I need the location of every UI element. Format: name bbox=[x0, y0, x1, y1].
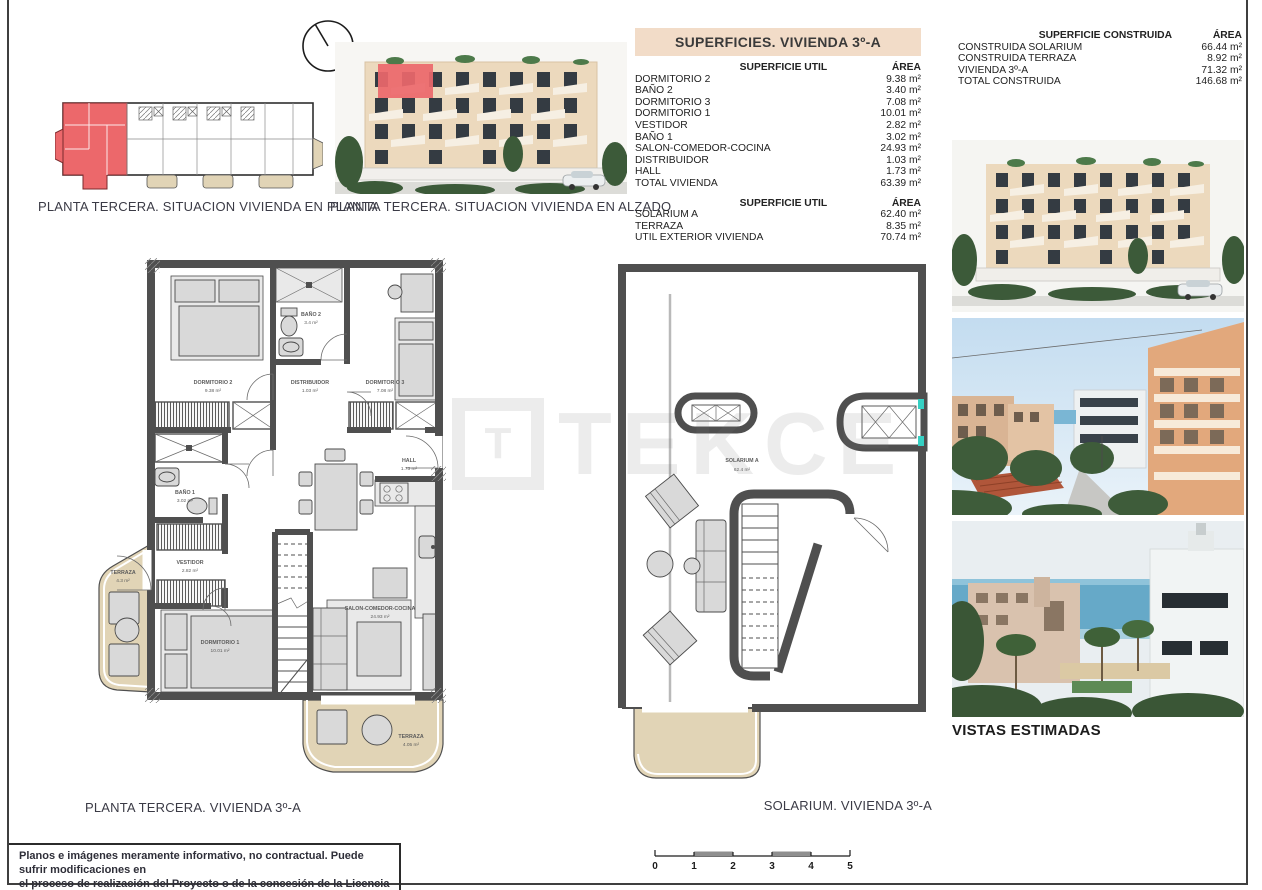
elevation-render bbox=[335, 42, 627, 194]
main-floor-plan: TERRAZA 4.3 m² TERRAZA 4.05 m² bbox=[85, 252, 470, 792]
site-terrace bbox=[259, 175, 293, 188]
room-label: VESTIDOR bbox=[176, 560, 203, 566]
table-row: DORMITORIO 29.38 m² bbox=[635, 74, 921, 86]
svg-text:1.03 m²: 1.03 m² bbox=[302, 388, 319, 394]
table-row: SALON-COMEDOR-COCINA24.93 m² bbox=[635, 143, 921, 155]
photo-street-view bbox=[952, 318, 1244, 515]
scale-label: 2 bbox=[730, 861, 736, 872]
table-row: BAÑO 13.02 m² bbox=[635, 132, 921, 144]
room-label: DISTRIBUIDOR bbox=[291, 380, 329, 386]
disclaimer-box: Planos e imágenes meramente informativo,… bbox=[9, 843, 401, 890]
table-row: SOLARIUM A62.40 m² bbox=[635, 209, 921, 221]
svg-text:3.4 m²: 3.4 m² bbox=[304, 320, 318, 326]
table-row: TOTAL CONSTRUIDA146.68 m² bbox=[958, 76, 1242, 88]
disclaimer-line2: el proceso de realización del Proyecto o… bbox=[19, 878, 389, 890]
svg-text:4.3 m²: 4.3 m² bbox=[116, 578, 130, 584]
site-terrace bbox=[147, 175, 177, 188]
scale-label: 0 bbox=[652, 861, 658, 872]
frame-right bbox=[1246, 0, 1248, 885]
scale-label: 5 bbox=[847, 861, 853, 872]
room-label: HALL bbox=[402, 458, 417, 464]
plan-sheet: PLANTA TERCERA. SITUACION VIVIENDA EN PL… bbox=[0, 0, 1262, 890]
construida-table: SUPERFICIE CONSTRUIDA ÁREA CONSTRUIDA SO… bbox=[958, 30, 1242, 88]
svg-text:3.02 m²: 3.02 m² bbox=[177, 498, 194, 504]
table-row: VESTIDOR2.82 m² bbox=[635, 120, 921, 132]
solarium-plan: SOLARIUM A 62.4 m² bbox=[612, 256, 934, 784]
svg-text:TERRAZA: TERRAZA bbox=[398, 734, 423, 740]
svg-text:10.01 m²: 10.01 m² bbox=[211, 648, 230, 654]
room-label: DORMITORIO 1 bbox=[201, 640, 240, 646]
bed-dormitorio2 bbox=[171, 276, 263, 360]
svg-text:7.08 m²: 7.08 m² bbox=[377, 388, 394, 394]
svg-text:62.4 m²: 62.4 m² bbox=[734, 467, 751, 473]
solarium-caption: SOLARIUM. VIVIENDA 3º-A bbox=[760, 798, 932, 813]
site-plan-caption: PLANTA TERCERA. SITUACION VIVIENDA EN PL… bbox=[38, 199, 338, 214]
table-row: UTIL EXTERIOR VIVIENDA70.74 m² bbox=[635, 232, 921, 244]
site-terrace bbox=[313, 138, 323, 169]
scale-label: 1 bbox=[691, 861, 697, 872]
table-header: SUPERFICIE CONSTRUIDA ÁREA bbox=[958, 30, 1242, 42]
table-row: BAÑO 23.40 m² bbox=[635, 85, 921, 97]
frame-left bbox=[7, 0, 9, 885]
table-row: CONSTRUIDA TERRAZA8.92 m² bbox=[958, 53, 1242, 65]
elevation-caption: PLANTA TERCERA. SITUACION VIVIENDA EN AL… bbox=[330, 199, 630, 214]
table-row: DISTRIBUIDOR1.03 m² bbox=[635, 155, 921, 167]
table-row: DORMITORIO 37.08 m² bbox=[635, 97, 921, 109]
table-header: SUPERFICIE UTIL ÁREA bbox=[635, 198, 921, 210]
svg-text:2.82 m²: 2.82 m² bbox=[182, 568, 199, 574]
scale-label: 4 bbox=[808, 861, 814, 872]
scale-bar: 0 1 2 3 4 5 bbox=[648, 842, 858, 874]
room-label: SOLARIUM A bbox=[725, 458, 759, 464]
elevation-highlight bbox=[378, 64, 433, 98]
table-row: TERRAZA8.35 m² bbox=[635, 221, 921, 233]
disclaimer-line1: Planos e imágenes meramente informativo,… bbox=[19, 850, 364, 876]
table-row: TOTAL VIVIENDA63.39 m² bbox=[635, 178, 921, 190]
terrace-bottom: TERRAZA 4.05 m² bbox=[303, 700, 443, 772]
superficies-table: SUPERFICIES. VIVIENDA 3º-A SUPERFICIE UT… bbox=[635, 28, 921, 244]
solarium-terrace bbox=[634, 708, 760, 778]
svg-text:24.93 m²: 24.93 m² bbox=[371, 614, 390, 620]
svg-text:TERRAZA: TERRAZA bbox=[110, 570, 135, 576]
svg-text:1.73 m²: 1.73 m² bbox=[401, 466, 418, 472]
room-label: DORMITORIO 2 bbox=[194, 380, 233, 386]
photo-building-render bbox=[952, 140, 1244, 312]
room-label: BAÑO 1 bbox=[175, 489, 195, 496]
site-building-outline bbox=[55, 103, 323, 189]
table-row: DORMITORIO 110.01 m² bbox=[635, 108, 921, 120]
vistas-estimadas-label: VISTAS ESTIMADAS bbox=[952, 722, 1101, 739]
room-label: SALON-COMEDOR-COCINA bbox=[345, 606, 416, 612]
site-plan-drawing bbox=[55, 83, 323, 198]
room-label: BAÑO 2 bbox=[301, 311, 321, 318]
floor-plan-caption: PLANTA TERCERA. VIVIENDA 3º-A bbox=[85, 800, 301, 815]
photo-sea-view bbox=[952, 521, 1244, 717]
planter-right bbox=[840, 396, 924, 448]
site-highlighted-unit bbox=[55, 103, 127, 189]
table-row: CONSTRUIDA SOLARIUM66.44 m² bbox=[958, 42, 1242, 54]
table-row: HALL1.73 m² bbox=[635, 166, 921, 178]
svg-text:4.05 m²: 4.05 m² bbox=[403, 742, 420, 748]
planter-left bbox=[678, 396, 754, 430]
table-row: VIVIENDA 3º-A71.32 m² bbox=[958, 65, 1242, 77]
scale-label: 3 bbox=[769, 861, 775, 872]
superficies-title: SUPERFICIES. VIVIENDA 3º-A bbox=[635, 28, 921, 56]
svg-text:9.38 m²: 9.38 m² bbox=[205, 388, 222, 394]
room-label: DORMITORIO 3 bbox=[366, 380, 405, 386]
staircase bbox=[277, 534, 310, 694]
table-header: SUPERFICIE UTIL ÁREA bbox=[635, 62, 921, 74]
site-terrace bbox=[203, 175, 233, 188]
